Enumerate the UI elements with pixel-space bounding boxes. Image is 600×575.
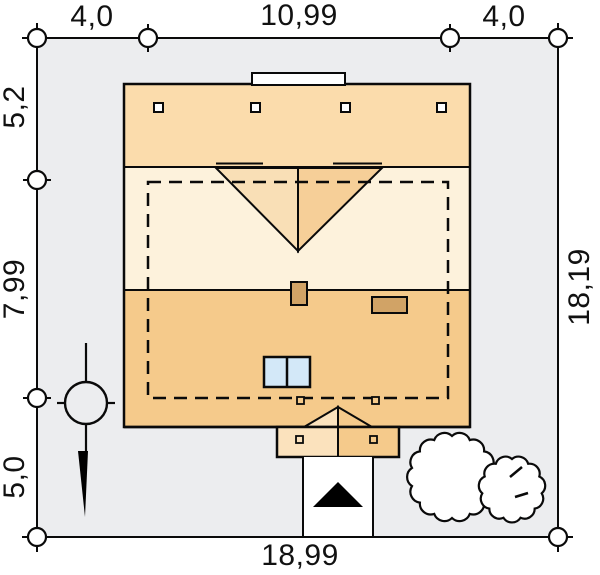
roof-window-4 — [437, 103, 446, 112]
post-marker-2 — [372, 397, 379, 404]
chimney-2 — [372, 297, 407, 313]
porch-right-half — [338, 427, 399, 457]
roof-window-2 — [251, 103, 260, 112]
dim-marker-bottom-left — [28, 528, 46, 546]
dim-label-left-lower: 5,0 — [0, 437, 30, 517]
dim-marker-top-a — [139, 29, 157, 47]
dim-marker-bottom-right — [549, 528, 567, 546]
chimney-1 — [291, 282, 307, 305]
dim-marker-top-right — [549, 29, 567, 47]
post-marker-1 — [297, 397, 304, 404]
roof-window-3 — [341, 103, 350, 112]
roof-band-top — [124, 84, 470, 167]
dim-label-left-middle: 7,99 — [0, 249, 30, 329]
dim-label-right: 18,19 — [565, 237, 595, 337]
dim-label-bottom: 18,99 — [240, 541, 360, 571]
roof-window-1 — [154, 103, 163, 112]
site-plan-drawing — [0, 0, 600, 575]
dim-marker-top-left — [28, 29, 46, 47]
dim-marker-left-a — [28, 171, 46, 189]
dim-marker-left-b — [28, 389, 46, 407]
site-plan-canvas: 4,0 10,99 4,0 5,2 7,99 5,0 18,19 18,99 — [0, 0, 600, 575]
dim-label-top-right: 4,0 — [464, 2, 544, 32]
dim-marker-top-b — [441, 29, 459, 47]
dim-label-top-center: 10,99 — [249, 1, 349, 31]
survey-point-icon — [65, 382, 107, 424]
dim-label-top-left: 4,0 — [52, 2, 132, 32]
porch-left-half — [277, 427, 338, 457]
dim-label-left-upper: 5,2 — [0, 67, 30, 147]
roof-terrace — [252, 73, 345, 85]
